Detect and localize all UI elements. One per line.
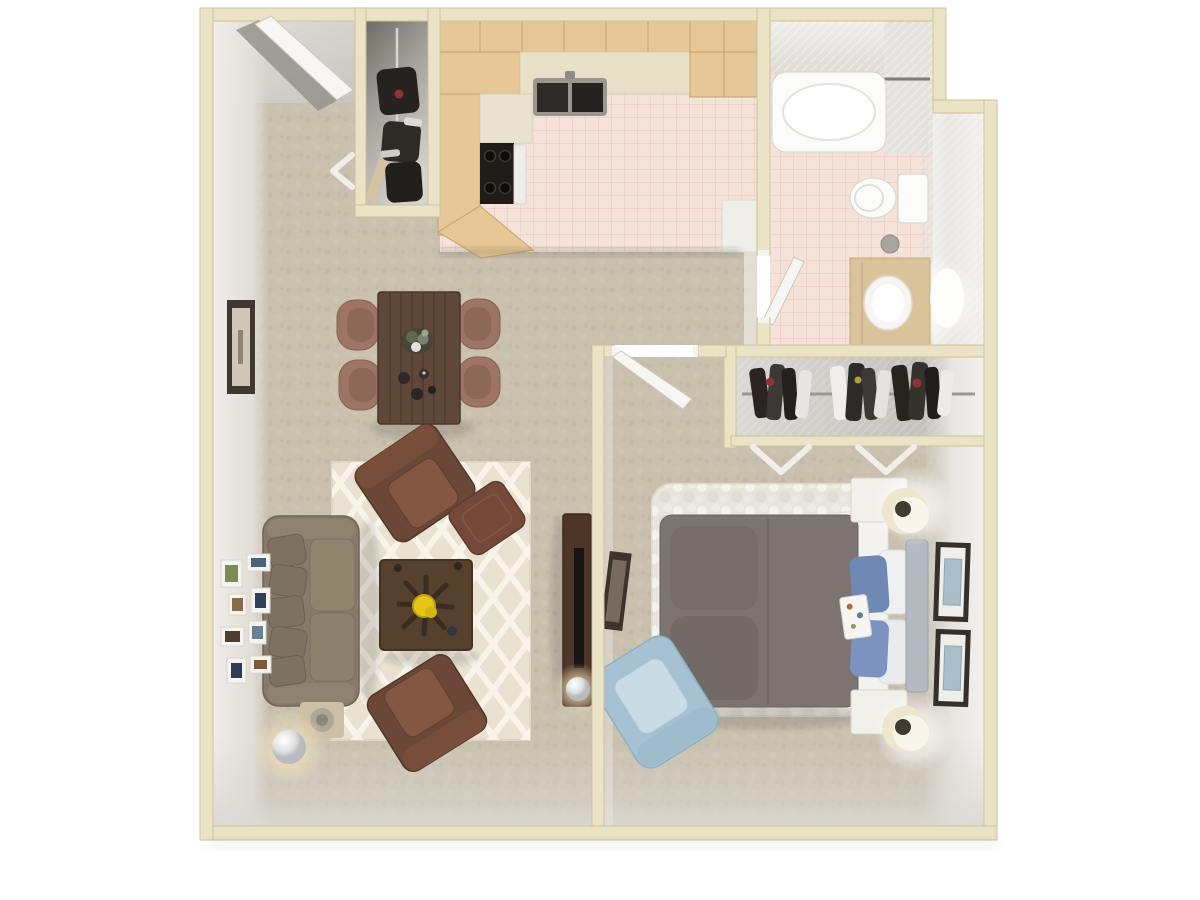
wall-right-lower xyxy=(984,100,997,840)
wall-pantry-left xyxy=(355,8,366,217)
yellow-flower-bud xyxy=(425,606,437,618)
sofa-seat-cushion-1 xyxy=(310,539,355,611)
wall-frame-bottom-art xyxy=(943,646,962,691)
hanging-clothes-cluster-1 xyxy=(749,363,813,420)
lamp-top-finial xyxy=(895,501,911,517)
range-oven-edge xyxy=(514,145,526,204)
round-mirror xyxy=(930,268,964,328)
table-corner-item-2 xyxy=(454,562,462,570)
toilet-bowl xyxy=(850,178,896,218)
headboard xyxy=(906,540,928,692)
dishwasher-end-panel xyxy=(722,200,757,252)
sofa-back-pillows xyxy=(266,533,308,687)
left-cabinet-top-section xyxy=(440,52,520,94)
bed xyxy=(660,512,928,708)
upper-cabinet-run xyxy=(440,21,757,53)
table-corner-item-1 xyxy=(394,564,402,572)
wall-bath-bottom xyxy=(724,345,984,357)
coffee-table xyxy=(380,560,472,650)
stored-item-red-accent xyxy=(395,90,404,99)
table-corner-item-3 xyxy=(447,626,457,636)
kitchen-sink-basin-right xyxy=(572,83,603,112)
wall-bath-west-upper xyxy=(757,8,770,255)
single-wall-frame xyxy=(227,300,255,394)
wall-living-bedroom-divider xyxy=(592,345,604,826)
building-drop-shadow xyxy=(208,840,998,848)
jamb-bath-door-top xyxy=(758,250,769,256)
floor-plan-stage xyxy=(0,0,1200,900)
stored-items-dark-3 xyxy=(385,161,424,203)
console-lamp xyxy=(566,677,590,701)
hanging-clothes-cluster-2 xyxy=(829,363,892,422)
wall-top xyxy=(200,8,946,21)
hanging-clothes-cluster-3 xyxy=(891,361,955,421)
sofa xyxy=(263,516,359,706)
counter-inset xyxy=(480,94,532,143)
wall-frame-top-art xyxy=(943,559,962,606)
wall-bedroom-top-right xyxy=(698,345,726,357)
kitchen-faucet xyxy=(565,71,575,79)
tv-screen xyxy=(574,548,584,668)
dining-chair-1-seat xyxy=(347,308,374,342)
sofa-seat-cushion-2 xyxy=(310,613,355,681)
waste-bin xyxy=(881,235,899,253)
table-centerpiece xyxy=(401,328,433,354)
vanity-sink-bowl xyxy=(872,284,904,322)
sphere-floor-lamp xyxy=(272,730,306,764)
toilet-tank xyxy=(898,174,928,223)
duvet-fold-top xyxy=(670,526,758,610)
wall-right-upper xyxy=(933,8,946,111)
wall-pantry-right xyxy=(428,8,440,217)
dining-chair-2-seat xyxy=(349,368,376,402)
kitchen-floor-shadow xyxy=(440,248,740,256)
dining-chair-3-seat xyxy=(464,307,491,341)
jamb-bedroom-door-right xyxy=(693,346,698,356)
wall-bottom xyxy=(200,826,997,840)
floor-plan-rendering xyxy=(0,0,1200,900)
wall-left xyxy=(200,8,213,840)
breakfast-tray xyxy=(839,594,872,639)
left-wall-inner-face xyxy=(213,21,270,826)
kitchen-sink-basin-left xyxy=(537,83,568,112)
sofa-armrest-top xyxy=(267,519,355,539)
dining-chair-4-seat xyxy=(464,365,491,399)
bathtub-basin xyxy=(783,84,875,140)
wall-closet-left xyxy=(724,345,736,448)
wall-pantry-bottom xyxy=(355,205,440,217)
lamp-bottom-finial xyxy=(895,719,911,735)
jamb-bath-door-bottom xyxy=(758,317,769,323)
